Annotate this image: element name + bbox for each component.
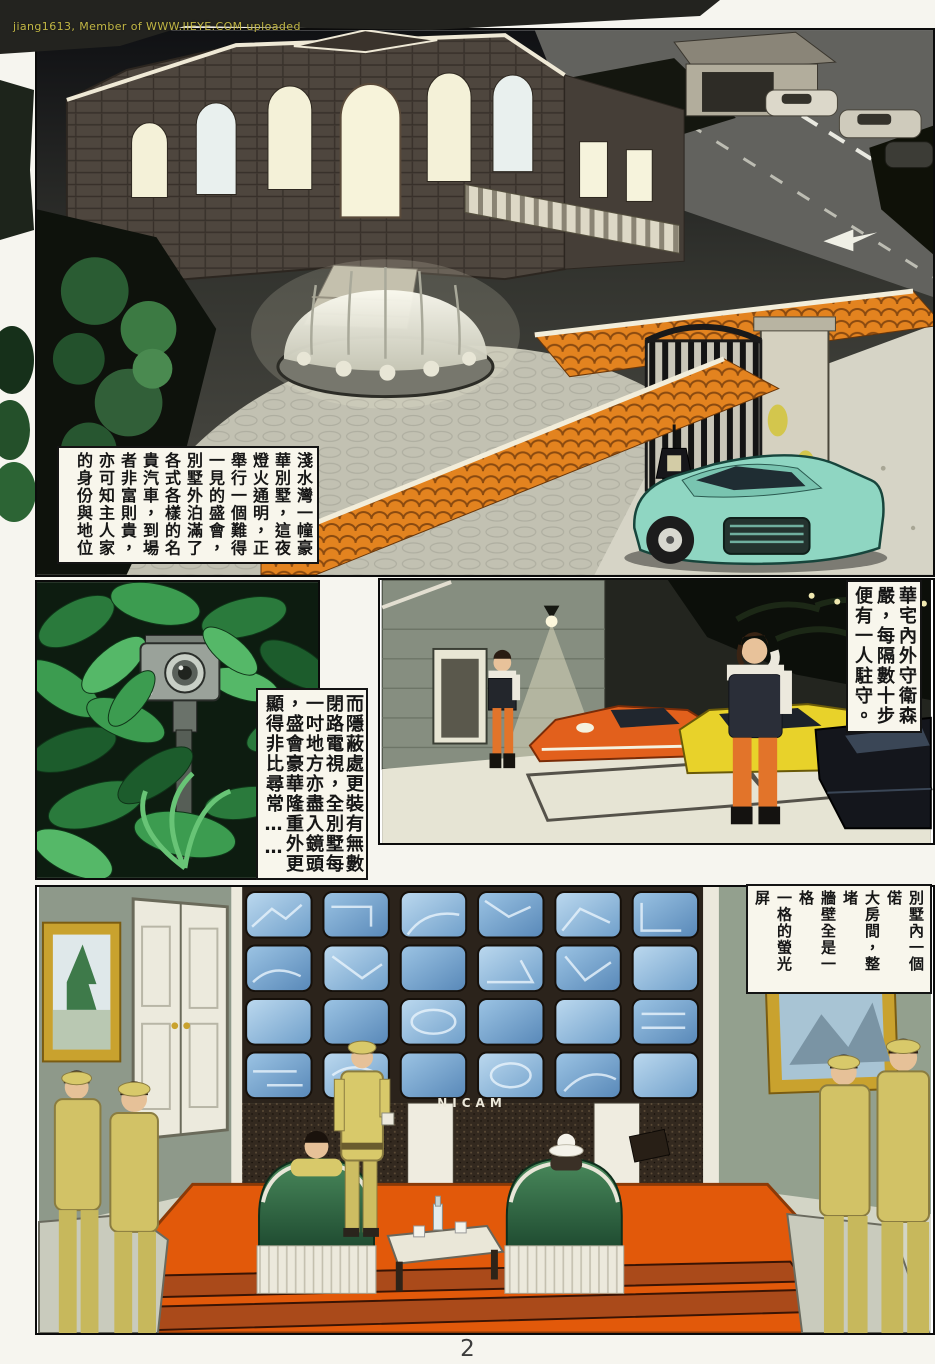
console-door-left bbox=[408, 1103, 454, 1194]
caption-column: 一見的盛會， bbox=[204, 452, 226, 558]
caption-column: 顯得非比尋常…… bbox=[263, 694, 283, 874]
monitor-wall bbox=[242, 887, 703, 1103]
caption-column: 一吋地方亦盡入鏡頭 bbox=[303, 694, 323, 874]
caption-column: 別墅外泊滿了 bbox=[182, 452, 204, 558]
caption-column: 華宅內外守衛森 bbox=[895, 586, 917, 727]
caption-column: 亦可知主人家 bbox=[94, 452, 116, 558]
caption-column: 而隱蔽處更裝有無數 bbox=[343, 694, 363, 874]
caption-column: 各式各樣的名 bbox=[160, 452, 182, 558]
comic-page: { "watermark": "jiang1613, Member of WWW… bbox=[0, 0, 935, 1364]
uploader-watermark: jiang1613, Member of WWW.IIEYE.COM uploa… bbox=[13, 20, 301, 33]
caption-column: 的身份與地位 bbox=[72, 452, 94, 558]
caption-column: 大房間，整堵 bbox=[839, 890, 883, 988]
double-door bbox=[133, 899, 227, 1140]
fountain bbox=[251, 259, 520, 408]
caption-column: 舉行一個難得 bbox=[226, 452, 248, 558]
caption-column: 燈火通明，正 bbox=[248, 452, 270, 558]
caption-panel2: 而隱蔽處更裝有無數閉路電視，全別墅每一吋地方亦盡入鏡頭，盛會豪華隆重外更顯得非比… bbox=[256, 688, 368, 880]
caption-panel4: 別墅內一個偌大房間，整堵牆壁全是一格一格的螢光屏，守衛無數，兩張眞皮梳化上各坐着… bbox=[746, 884, 932, 994]
monitor-wall-brand-label: NICAM bbox=[430, 1096, 514, 1110]
bottle bbox=[433, 1204, 442, 1230]
caption-column: 華別墅，這夜 bbox=[270, 452, 292, 558]
caption-column: 一格的螢光屏 bbox=[751, 890, 795, 988]
framed-painting-left bbox=[43, 923, 120, 1062]
caption-column: 便有一人駐守。 bbox=[851, 586, 873, 727]
caption-column: 嚴，每隔數十步 bbox=[873, 586, 895, 727]
entrance-arch bbox=[341, 84, 401, 217]
caption-column: ，守衛無數， bbox=[746, 890, 751, 988]
caption-column: 淺水灣一幢豪 bbox=[292, 452, 314, 558]
left-margin-foliage-bleed bbox=[0, 80, 35, 580]
caption-column: 貴汽車，到場 bbox=[138, 452, 160, 558]
right-pillar bbox=[703, 887, 719, 1194]
armchair-right bbox=[505, 1159, 624, 1294]
page-number: 2 bbox=[0, 1336, 935, 1362]
caption-column: 別墅內一個偌 bbox=[883, 890, 927, 988]
window-arched bbox=[132, 123, 168, 198]
caption-column: 閉路電視，全別墅每 bbox=[323, 694, 343, 874]
caption-column: ，盛會豪華隆重外更 bbox=[283, 694, 303, 874]
caption-panel3: 華宅內外守衛森嚴，每隔數十步便有一人駐守。 bbox=[846, 580, 922, 733]
caption-panel1: 淺水灣一幢豪華別墅，這夜燈火通明，正舉行一個難得一見的盛會，別墅外泊滿了各式各樣… bbox=[57, 446, 319, 564]
caption-column: 牆壁全是一格 bbox=[795, 890, 839, 988]
caption-column: 者非富則貴， bbox=[116, 452, 138, 558]
